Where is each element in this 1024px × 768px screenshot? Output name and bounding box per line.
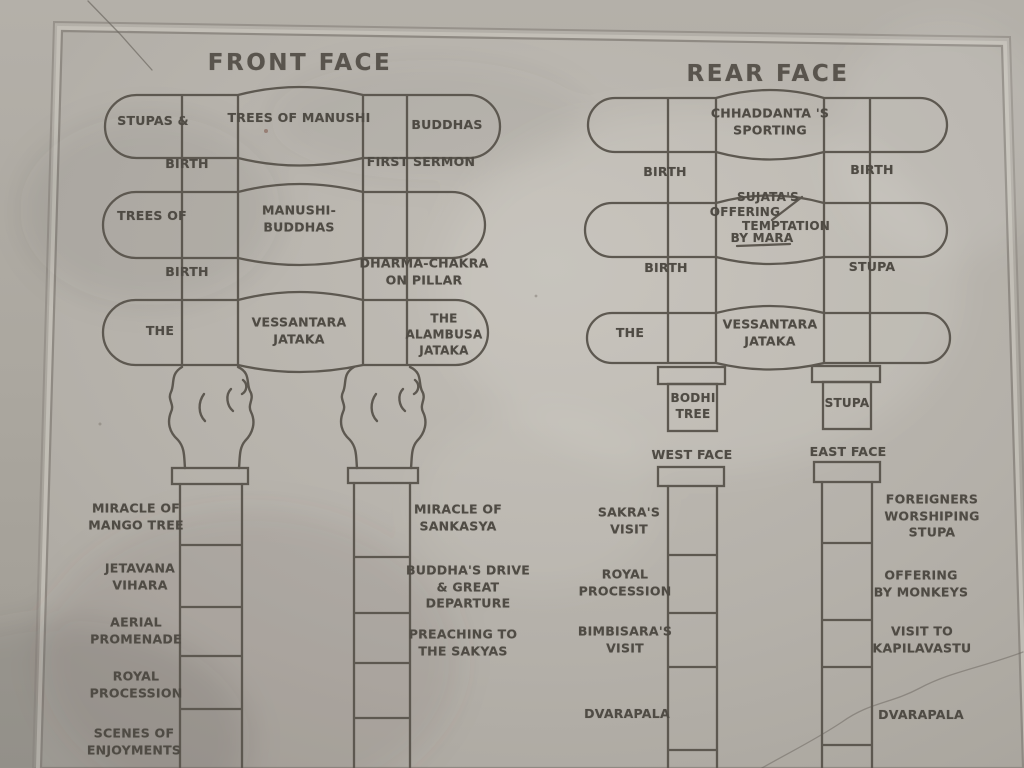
front-face-title: FRONT FACE — [208, 48, 392, 78]
front-left-pillar-label: SCENES OF ENJOYMENTS — [87, 726, 181, 759]
east-face-label: EAST FACE — [810, 444, 887, 461]
stone-sign-photo: FRONT FACE STUPAS & TREES OF MANUSHI BUD… — [0, 0, 1024, 768]
stupa-capital-label: STUPA — [825, 396, 870, 412]
front-upper-gap-left-label: BIRTH — [165, 156, 208, 173]
rear-middle-panel-line1: SUJATA'S — [737, 190, 799, 206]
west-face-label: WEST FACE — [652, 447, 733, 464]
front-top-right-panel-label: BUDDHAS — [411, 117, 482, 134]
rear-left-pillar-label: SAKRA'S VISIT — [598, 505, 660, 538]
rear-left-pillar-label: DVARAPALA — [584, 706, 670, 723]
front-middle-center-panel-label: MANUSHI- BUDDHAS — [262, 203, 336, 236]
front-upper-gap-right-label: FIRST SERMON — [367, 154, 475, 171]
front-left-pillar-label: MIRACLE OF MANGO TREE — [88, 501, 184, 534]
rear-right-pillar-label: FOREIGNERS WORSHIPING STUPA — [884, 491, 979, 541]
rear-lower-gap-left-label: BIRTH — [644, 260, 687, 277]
front-top-left-panel-label: STUPAS & — [117, 113, 189, 130]
front-right-pillar-label: BUDDHA'S DRIVE & GREAT DEPARTURE — [406, 562, 530, 612]
front-lower-gap-right-label: DHARMA-CHAKRA ON PILLAR — [360, 256, 489, 289]
rear-left-pillar-label: ROYAL PROCESSION — [579, 567, 672, 600]
rear-bottom-center-panel-label: VESSANTARA JATAKA — [723, 317, 818, 350]
rear-lower-gap-right-label: STUPA — [849, 259, 896, 276]
rear-right-pillar-label: VISIT TO KAPILAVASTU — [873, 624, 972, 657]
rear-right-pillar-label: OFFERING BY MONKEYS — [874, 568, 969, 601]
front-top-center-panel-label: TREES OF MANUSHI — [228, 110, 371, 127]
front-bottom-left-panel-label: THE — [146, 323, 174, 340]
front-right-pillar-label: MIRACLE OF SANKASYA — [414, 502, 502, 535]
front-right-pillar-label: PREACHING TO THE SAKYAS — [409, 627, 518, 660]
front-left-pillar-label: ROYAL PROCESSION — [90, 669, 183, 702]
rear-face-title: REAR FACE — [687, 59, 850, 89]
front-bottom-center-panel-label: VESSANTARA JATAKA — [252, 315, 347, 348]
rear-top-center-panel-label: CHHADDANTA 'S SPORTING — [711, 106, 829, 139]
rear-bottom-left-panel-label: THE — [616, 325, 644, 342]
front-middle-left-panel-label: TREES OF — [117, 208, 187, 225]
rear-right-pillar-label: DVARAPALA — [878, 707, 964, 724]
rear-upper-gap-right-label: BIRTH — [850, 162, 893, 179]
rear-middle-panel-line4: BY MARA — [731, 231, 794, 247]
front-bottom-right-panel-label: THE ALAMBUSA JATAKA — [406, 311, 483, 358]
rear-left-pillar-label: BIMBISARA'S VISIT — [578, 624, 672, 657]
rear-upper-gap-left-label: BIRTH — [643, 164, 686, 181]
front-left-pillar-label: JETAVANA VIHARA — [105, 561, 175, 594]
front-left-pillar-label: AERIAL PROMENADE — [90, 615, 182, 648]
bodhi-tree-capital-label: BODHI TREE — [670, 391, 715, 423]
front-lower-gap-left-label: BIRTH — [165, 264, 208, 281]
